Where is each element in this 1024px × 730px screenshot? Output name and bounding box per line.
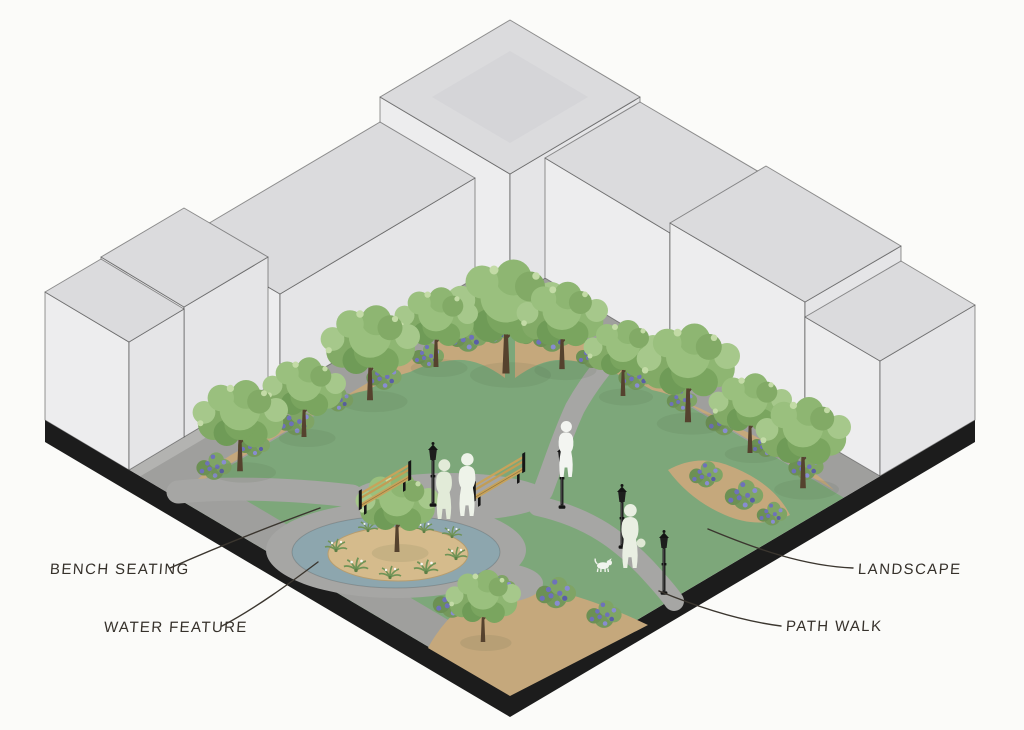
- shoulder-bag: [637, 539, 646, 548]
- callout-water-feature: WATER FEATURE: [103, 619, 248, 636]
- site-diagram: BENCH SEATING WATER FEATURE LANDSCAPE PA…: [0, 0, 1024, 730]
- callout-bench-seating: BENCH SEATING: [49, 561, 190, 578]
- path-west-entry: [178, 489, 352, 496]
- callout-path-walk: PATH WALK: [785, 618, 883, 635]
- callout-landscape: LANDSCAPE: [857, 561, 962, 578]
